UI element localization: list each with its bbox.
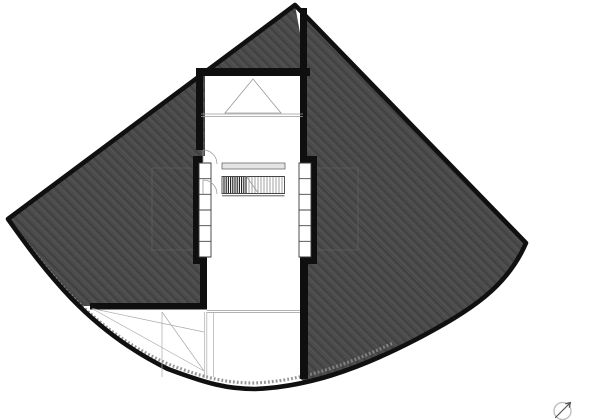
floor-plan-canvas — [0, 0, 610, 420]
floor-plan — [0, 0, 610, 420]
stair-handrail — [222, 163, 285, 169]
